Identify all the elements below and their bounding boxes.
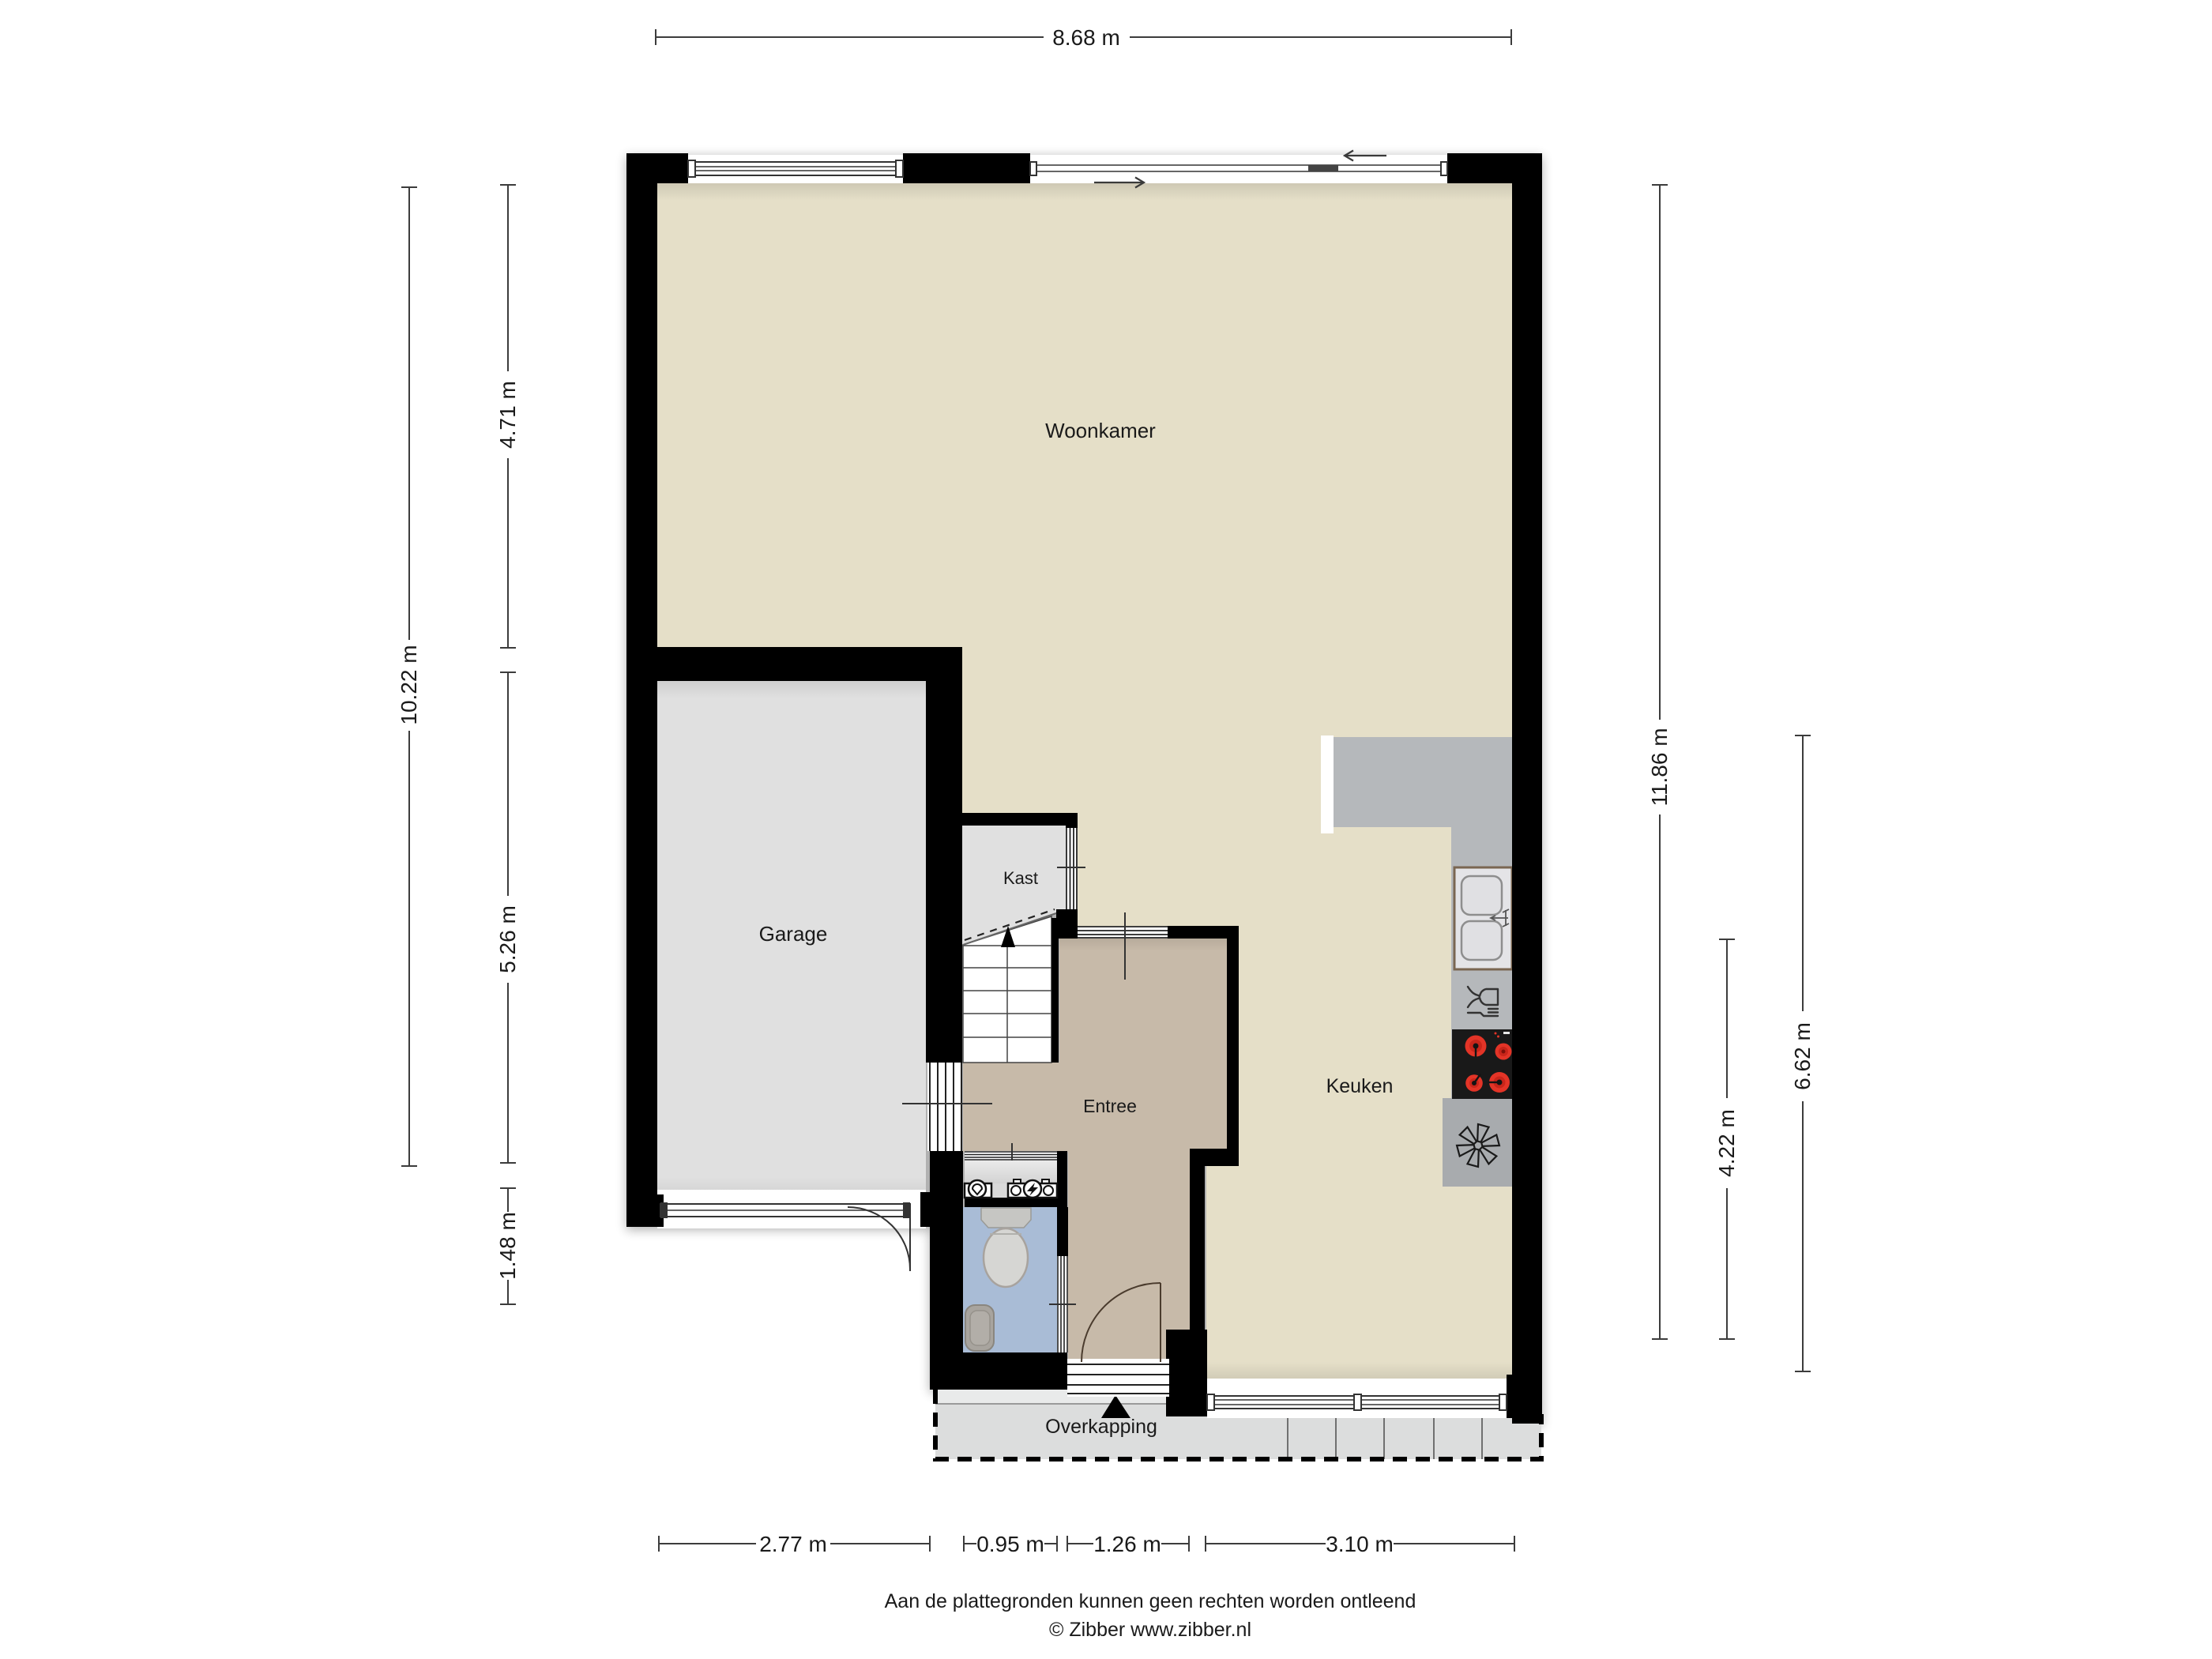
svg-text:Aan de plattegronden kunnen ge: Aan de plattegronden kunnen geen rechten… <box>885 1590 1416 1612</box>
svg-text:0.95 m: 0.95 m <box>976 1532 1044 1556</box>
svg-text:5.26 m: 5.26 m <box>495 905 520 973</box>
svg-text:Overkapping: Overkapping <box>1045 1416 1157 1438</box>
svg-text:4.22 m: 4.22 m <box>1714 1109 1739 1177</box>
svg-text:1.26 m: 1.26 m <box>1093 1532 1161 1556</box>
svg-text:8.68 m: 8.68 m <box>1052 25 1120 50</box>
svg-text:11.86 m: 11.86 m <box>1647 728 1672 806</box>
svg-text:Woonkamer: Woonkamer <box>1045 419 1156 442</box>
svg-text:Garage: Garage <box>759 922 828 946</box>
svg-text:Keuken: Keuken <box>1326 1075 1394 1097</box>
svg-text:2.77 m: 2.77 m <box>759 1532 827 1556</box>
svg-text:© Zibber www.zibber.nl: © Zibber www.zibber.nl <box>1049 1619 1251 1641</box>
svg-text:Kast: Kast <box>1003 868 1038 888</box>
svg-text:Entree: Entree <box>1083 1096 1137 1116</box>
svg-text:4.71 m: 4.71 m <box>495 381 520 449</box>
svg-text:10.22 m: 10.22 m <box>397 645 421 724</box>
svg-text:3.10 m: 3.10 m <box>1326 1532 1394 1556</box>
svg-text:1.48 m: 1.48 m <box>495 1212 520 1280</box>
svg-text:6.62 m: 6.62 m <box>1790 1022 1815 1090</box>
